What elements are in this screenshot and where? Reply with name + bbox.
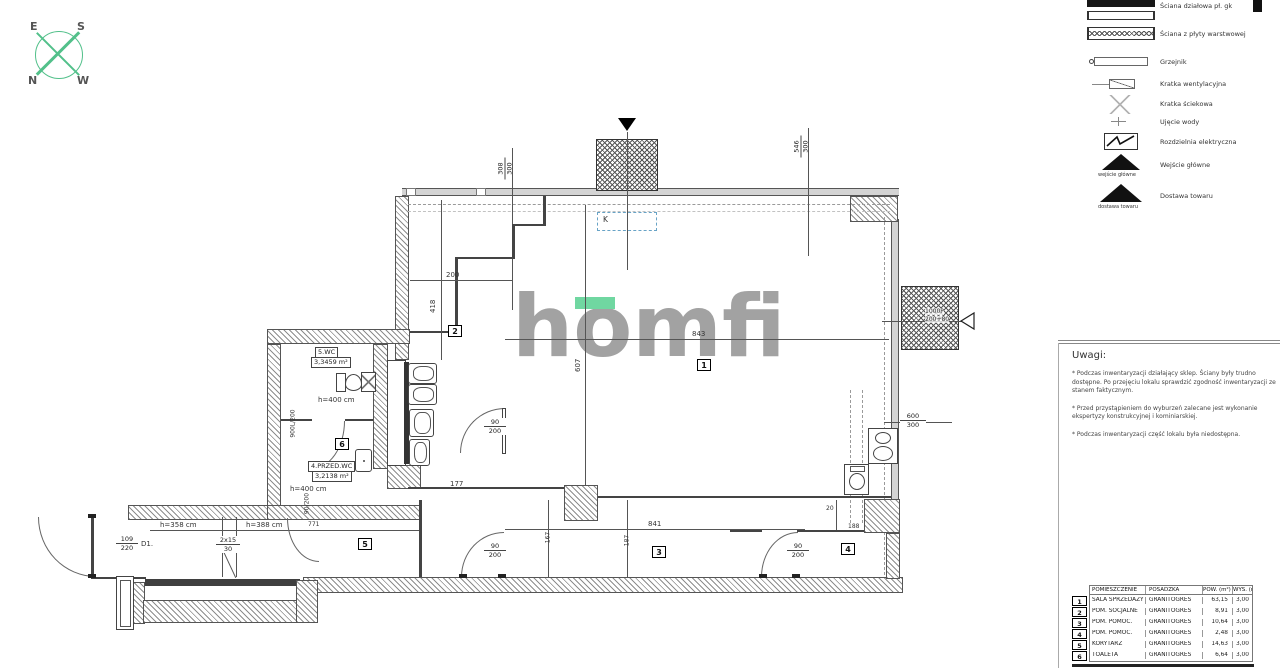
room-marker-2: 2 (448, 325, 462, 337)
room-height: 3,00 (1232, 597, 1252, 604)
dim-value: 300 (801, 136, 810, 158)
dim-value: 546 (793, 136, 801, 158)
notes-body: * Podczas inwentaryzacji działający skle… (1072, 370, 1277, 446)
room-height: 3,00 (1232, 630, 1252, 637)
wall-column (564, 485, 598, 521)
wc-door-dim: 900L/200 (290, 402, 297, 446)
door-dim: 90 200 (484, 418, 506, 435)
table-body: SALA SPRZEDAŻY GRANITOGRES 63,15 3,00 PO… (1089, 595, 1253, 662)
wall-wc-right (373, 344, 388, 469)
row-number: 6 (1072, 651, 1087, 661)
room-floor: GRANITOGRES (1145, 597, 1202, 604)
legend-item-label: Ściana z płyty warstwowej (1160, 30, 1246, 38)
wall-wc-left (267, 344, 281, 508)
main-entrance-arrow-icon (618, 118, 636, 131)
dim-value: 90 (484, 418, 506, 426)
stairs-dim: 2x15 30 (216, 536, 240, 553)
dim-value: 308 (497, 158, 505, 180)
wc-height-label: h=400 cm (318, 396, 355, 404)
sandwich-panel-wall (145, 579, 300, 586)
partition-wall-icon (1087, 11, 1155, 20)
dim-value: 300 (900, 420, 926, 429)
dim-value: 300 (505, 158, 514, 180)
col-header: POSADZKA (1145, 586, 1202, 594)
dim-value: 2x15 (216, 536, 240, 544)
col-header: WYS. (m) (1232, 586, 1252, 594)
row-number: 1 (1072, 596, 1087, 606)
note-item: * Podczas inwentaryzacji działający skle… (1072, 370, 1277, 396)
partition (730, 530, 762, 532)
partition (512, 224, 515, 259)
table-bottom-rule (1072, 664, 1254, 667)
note-item: * Podczas inwentaryzacji część lokalu by… (1072, 431, 1277, 440)
floor-plan-sheet: E S N W Ściana działowa pł. gk Ściana z … (0, 0, 1280, 668)
vestibule-window (116, 576, 134, 630)
room-name: POM. SOCJALNE (1090, 608, 1145, 615)
partition (455, 257, 458, 333)
dim-line (410, 280, 512, 281)
wall-corridor-right (419, 500, 422, 577)
dim-line (441, 200, 442, 360)
washbasin-icon (355, 449, 372, 472)
table-row: SALA SPRZEDAŻY GRANITOGRES 63,15 3,00 (1090, 595, 1252, 606)
dim-line (150, 530, 420, 531)
partition (598, 496, 891, 498)
room-floor: GRANITOGRES (1145, 608, 1202, 615)
room-height: 3,00 (1232, 652, 1252, 659)
wall-column (864, 499, 900, 533)
delivery-axis-line (882, 321, 962, 322)
dim-200: 200 (446, 271, 459, 279)
partition (408, 487, 566, 489)
entry-door-label: D1. (141, 540, 153, 548)
delivery-dim: 200+80 (925, 316, 949, 323)
dim-843: 843 (692, 330, 705, 338)
room-name: TOALETA (1090, 652, 1145, 659)
wall-corridor-top (128, 505, 268, 520)
legend-item-label: Kratka ściekowa (1160, 100, 1213, 108)
legend-item-label: Wejście główne (1160, 161, 1210, 169)
legend-item-label: Dostawa towaru (1160, 192, 1213, 200)
przedwc-area-label: 3,2138 m² (312, 471, 352, 482)
goods-delivery-marker-icon (958, 310, 976, 336)
door-arc (287, 518, 319, 562)
note-item: * Przed przystąpieniem do wyburzeń zalec… (1072, 405, 1277, 422)
dim-607: 607 (574, 332, 582, 372)
row-number: 3 (1072, 618, 1087, 628)
wc-partition (281, 419, 312, 421)
main-entrance-caption: wejście główne (1098, 172, 1136, 178)
window-dim: 600 300 (900, 412, 926, 429)
dim-418: 418 (429, 273, 437, 313)
dim-167: 167 (545, 518, 552, 558)
room-area: 2,48 (1202, 630, 1232, 637)
dim-value: 200 (484, 550, 506, 559)
corridor-h1: h=358 cm (160, 521, 197, 529)
floor-drain-icon (1108, 95, 1132, 114)
room-marker-3: 3 (652, 546, 666, 558)
water-intake-tick-icon (1118, 117, 1119, 126)
room-area: 14,63 (1202, 641, 1232, 648)
room-floor: GRANITOGRES (1145, 630, 1202, 637)
room-height: 3,00 (1232, 608, 1252, 615)
notes-title: Uwagi: (1072, 350, 1106, 361)
dashed-line (408, 204, 890, 205)
door-dim: 90 200 (787, 542, 809, 559)
dim-value: 220 (116, 543, 138, 552)
dim-value: 90 (787, 542, 809, 550)
sink-icon (409, 409, 434, 437)
wall-block (387, 465, 421, 489)
radiator-icon (1094, 57, 1148, 66)
dim-line (836, 500, 837, 530)
table-header-row: POMIESZCZENIE POSADZKA POW. (m²) WYS. (m… (1089, 585, 1253, 595)
partition (512, 224, 545, 226)
dim-value: 200 (484, 426, 506, 435)
room-floor: GRANITOGRES (1145, 641, 1202, 648)
col-header: POW. (m²) (1202, 586, 1232, 594)
homfi-watermark: homfi (512, 284, 786, 370)
vent-grille-lead-icon (1092, 84, 1109, 85)
delivery-dim: 1000P (925, 308, 944, 315)
wall-vestibule-bottom (143, 600, 305, 623)
table-row: POM. POMOC. GRANITOGRES 2,48 3,00 (1090, 628, 1252, 639)
window-dim: 308 300 (497, 158, 514, 180)
room-area: 8,91 (1202, 608, 1232, 615)
dim-value: 109 (116, 535, 138, 543)
window-mark (476, 188, 486, 196)
wall-bottom (303, 577, 903, 593)
door-cap (88, 574, 96, 578)
wall-right-lower (886, 533, 900, 579)
double-sink-icon (868, 428, 898, 464)
partition (455, 257, 514, 259)
dim-187: 187 (624, 521, 631, 561)
dashed-line (850, 390, 851, 523)
table-row: POM. POMOC. GRANITOGRES 10,64 3,00 (1090, 617, 1252, 628)
wall-corner-column (850, 196, 898, 222)
row-number: 5 (1072, 640, 1087, 650)
room-floor: GRANITOGRES (1145, 619, 1202, 626)
room-floor: GRANITOGRES (1145, 652, 1202, 659)
wall-vestibule-right (296, 580, 318, 623)
divider (1058, 343, 1280, 344)
sink-icon (408, 384, 437, 405)
entry-door-arc (38, 517, 96, 577)
room-marker-6: 6 (335, 438, 349, 450)
door-cap (88, 514, 96, 518)
room-area: 63,15 (1202, 597, 1232, 604)
dim-value: 200 (787, 550, 809, 559)
dim-line (585, 205, 586, 489)
wall-grille-icon (361, 372, 376, 392)
dim-value: 30 (216, 544, 240, 553)
dim-line (505, 339, 889, 340)
door-cap (459, 574, 467, 578)
radiator-valve-icon (1089, 59, 1094, 64)
dim-841: 841 (648, 520, 661, 528)
toilet-bowl-icon (345, 374, 362, 391)
door-dim: 90 200 (484, 542, 506, 559)
homfi-accent-bar (575, 297, 615, 309)
dim-188: 188 (848, 523, 859, 530)
main-entrance-icon (1102, 154, 1140, 170)
legend-item-label: Ujęcie wody (1160, 118, 1199, 126)
sink-icon (408, 363, 437, 384)
k-marker: K (602, 215, 609, 224)
electrical-panel-icon (1104, 133, 1138, 150)
divider (1058, 340, 1280, 341)
room-marker-5: 5 (358, 538, 372, 550)
room-area: 6,64 (1202, 652, 1232, 659)
room-name: POM. POMOC. (1090, 619, 1145, 626)
sandwich-panel-wall-icon (1087, 27, 1155, 40)
room-name: KORYTARZ (1090, 641, 1145, 648)
dim-20: 20 (826, 505, 834, 512)
door-cap (792, 574, 800, 578)
wc-partition (345, 419, 373, 421)
wall-wc-top (267, 329, 410, 344)
table-row: TOALETA GRANITOGRES 6,64 3,00 (1090, 650, 1252, 661)
partition (543, 196, 546, 226)
entry-door-dim: 109 220 (116, 535, 138, 552)
table-row: KORYTARZ GRANITOGRES 14,63 3,00 (1090, 639, 1252, 650)
sink-icon (409, 439, 430, 466)
legend-item-label: Ściana działowa pł. gk (1160, 2, 1232, 10)
legend-item-label: Grzejnik (1160, 58, 1187, 66)
dashed-line (862, 390, 863, 523)
dim-value: 600 (900, 412, 926, 420)
legend-item-label: Rozdzielnia elektryczna (1160, 138, 1236, 146)
row-number: 2 (1072, 607, 1087, 617)
room-height: 3,00 (1232, 619, 1252, 626)
room-marker-4: 4 (841, 543, 855, 555)
goods-delivery-caption: dostawa towaru (1098, 204, 1138, 210)
table-row: POM. SOCJALNE GRANITOGRES 8,91 3,00 (1090, 606, 1252, 617)
room-marker-1: 1 (697, 359, 711, 371)
sheet-corner-mark (1253, 0, 1262, 12)
window-dim: 546 300 (793, 136, 810, 158)
corridor-h2: h=388 cm (246, 521, 283, 529)
corridor-door-dim: 90/200 (304, 484, 311, 524)
door-cap (759, 574, 767, 578)
dim-value: 90 (484, 542, 506, 550)
wc-area-label: 3,3459 m² (311, 357, 351, 368)
vent-grille-icon (1109, 79, 1135, 89)
window-mark (406, 188, 416, 196)
goods-delivery-icon (1100, 184, 1142, 202)
row-number: 4 (1072, 629, 1087, 639)
wall-symbol-cut-icon (1087, 0, 1155, 7)
col-header: POMIESZCZENIE (1090, 586, 1145, 594)
door-cap (498, 574, 506, 578)
floor-plan: homfi K 1000P 200+80 308 (0, 0, 1060, 668)
room-area: 10,64 (1202, 619, 1232, 626)
water-heater-icon (844, 464, 869, 495)
legend-item-label: Kratka wentylacyjna (1160, 80, 1226, 88)
room-table: POMIESZCZENIE POSADZKA POW. (m²) WYS. (m… (1072, 585, 1254, 668)
room-name: SALA SPRZEDAŻY (1090, 597, 1145, 604)
room-name: POM. POMOC. (1090, 630, 1145, 637)
entrance-axis-line (627, 132, 628, 270)
room-height: 3,00 (1232, 641, 1252, 648)
partition (797, 530, 867, 532)
